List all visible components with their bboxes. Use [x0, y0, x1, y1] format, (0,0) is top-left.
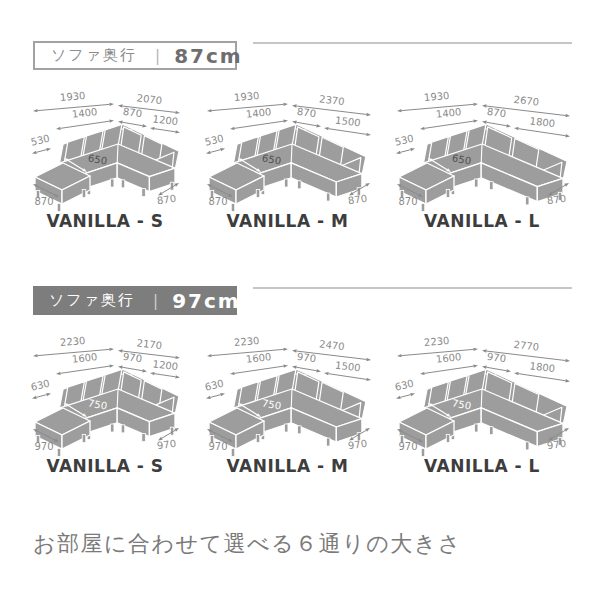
svg-text:970: 970: [398, 441, 417, 452]
sofa-diagram-87-m: 1930237014008701500530650870870 VANILLA …: [204, 85, 389, 235]
sofa-diagram-87-s: 1930207014008701200530650870870 VANILLA …: [30, 85, 215, 235]
depth-header-label: ソファ奥行: [49, 291, 135, 310]
svg-text:1500: 1500: [335, 360, 362, 374]
svg-text:970: 970: [546, 438, 566, 452]
sofa-drawing: [399, 124, 567, 212]
svg-text:530: 530: [30, 133, 51, 148]
svg-text:1800: 1800: [529, 360, 556, 374]
sofa-drawing: [399, 369, 567, 457]
svg-text:970: 970: [296, 351, 316, 365]
model-name: VANILLA - L: [394, 211, 570, 231]
svg-text:1600: 1600: [435, 351, 461, 365]
svg-text:970: 970: [347, 438, 367, 452]
depth-header-label: ソファ奥行: [51, 46, 137, 65]
model-name: VANILLA - M: [204, 211, 371, 231]
svg-text:630: 630: [30, 378, 51, 393]
svg-text:1400: 1400: [435, 106, 461, 120]
svg-text:1930: 1930: [424, 90, 450, 103]
sofa-diagram-87-l: 1930267014008701800530650870870 VANILLA …: [394, 85, 579, 235]
svg-text:1600: 1600: [245, 351, 271, 365]
sofa-drawing: [209, 124, 366, 212]
svg-text:970: 970: [486, 351, 506, 365]
svg-text:1200: 1200: [152, 358, 179, 372]
svg-text:2670: 2670: [513, 94, 540, 108]
svg-text:1800: 1800: [529, 115, 556, 129]
svg-text:1400: 1400: [245, 106, 271, 120]
depth-header-97: ソファ奥行 | 97cm: [33, 286, 237, 315]
svg-text:970: 970: [156, 438, 176, 452]
svg-text:1200: 1200: [152, 113, 179, 127]
model-name: VANILLA - M: [204, 456, 371, 476]
svg-text:870: 870: [296, 106, 316, 120]
model-name: VANILLA - S: [30, 211, 180, 231]
svg-text:870: 870: [156, 193, 176, 207]
svg-text:970: 970: [122, 351, 142, 365]
svg-text:2070: 2070: [136, 92, 163, 106]
depth-header-value: 97cm: [172, 289, 241, 313]
sofa-diagram-97-m: 2230247016009701500630750970970 VANILLA …: [204, 330, 389, 480]
svg-text:2170: 2170: [136, 337, 163, 351]
svg-text:870: 870: [208, 196, 227, 207]
depth-header-87: ソファ奥行 | 87cm: [33, 41, 237, 70]
sofa-drawing: [209, 369, 366, 457]
header-rule: [253, 42, 572, 44]
svg-text:870: 870: [398, 196, 417, 207]
svg-text:870: 870: [486, 106, 506, 120]
svg-text:2230: 2230: [424, 335, 450, 348]
svg-text:2230: 2230: [60, 335, 86, 348]
svg-text:870: 870: [122, 106, 142, 120]
svg-text:870: 870: [546, 193, 566, 207]
svg-text:1500: 1500: [335, 115, 362, 129]
page-caption: お部屋に合わせて選べる６通りの大きさ: [33, 529, 462, 559]
depth-header-divider: |: [155, 47, 160, 65]
svg-text:630: 630: [204, 378, 225, 393]
svg-text:2470: 2470: [319, 338, 346, 352]
svg-text:1400: 1400: [71, 106, 97, 120]
svg-text:2770: 2770: [513, 339, 540, 353]
sofa-diagram-97-l: 2230277016009701800630750970970 VANILLA …: [394, 330, 579, 480]
svg-text:1930: 1930: [234, 90, 260, 103]
svg-text:970: 970: [208, 441, 227, 452]
svg-text:630: 630: [394, 378, 415, 393]
svg-text:530: 530: [394, 133, 415, 148]
model-name: VANILLA - S: [30, 456, 180, 476]
sofa-diagram-97-s: 2230217016009701200630750970970 VANILLA …: [30, 330, 215, 480]
svg-text:970: 970: [34, 441, 53, 452]
svg-text:1930: 1930: [60, 90, 86, 103]
depth-header-value: 87cm: [174, 44, 243, 68]
model-name: VANILLA - L: [394, 456, 570, 476]
header-rule: [253, 287, 572, 289]
svg-text:1600: 1600: [71, 351, 97, 365]
svg-text:2370: 2370: [319, 93, 346, 107]
svg-text:2230: 2230: [234, 335, 260, 348]
svg-text:870: 870: [34, 196, 53, 207]
svg-text:870: 870: [347, 193, 367, 207]
depth-header-divider: |: [153, 292, 158, 310]
svg-text:530: 530: [204, 133, 225, 148]
